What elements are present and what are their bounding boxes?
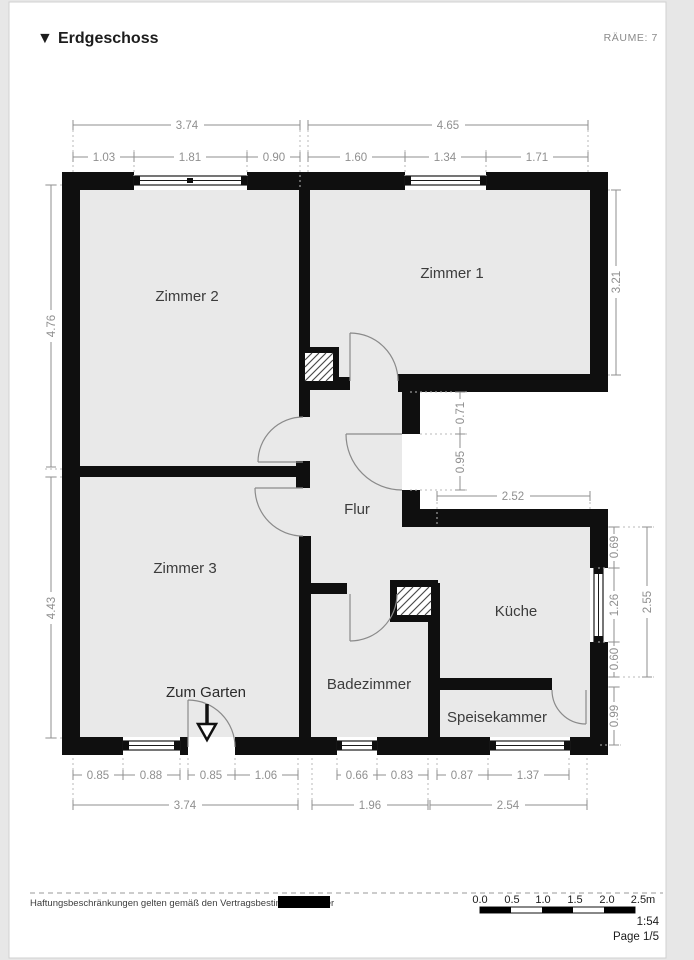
dim-text: 3.74: [174, 800, 197, 812]
page-title: Erdgeschoss: [58, 30, 159, 47]
chimney-1: [299, 347, 339, 387]
room-label-zimmer2: Zimmer 2: [155, 288, 218, 305]
garden-door-label: Zum Garten: [166, 684, 246, 701]
window-zimmer1-top: [405, 176, 486, 185]
dim-text: 0.85: [87, 770, 109, 782]
page-indicator: Page 1/5: [613, 931, 659, 943]
dim-text: 1.34: [434, 152, 457, 164]
dim-text: 0.88: [140, 770, 162, 782]
scale-label: 0.0: [472, 894, 487, 906]
dim-text: 0.99: [609, 705, 621, 727]
dim-text: 4.65: [437, 120, 459, 132]
room-label-badezimmer: Badezimmer: [327, 676, 411, 693]
collapse-icon[interactable]: ▼: [37, 30, 53, 47]
dim-text: 3.74: [176, 120, 199, 132]
dim-text: 1.96: [359, 800, 381, 812]
scale-label: 2.0: [599, 894, 614, 906]
entrance-threshold: [402, 434, 420, 490]
dim-text: 1.71: [526, 152, 548, 164]
window-zimmer3-bottom: [123, 741, 180, 750]
dim-text: 1.37: [517, 770, 539, 782]
rooms-count: RÄUME: 7: [604, 32, 658, 44]
dim-text: 1.81: [179, 152, 201, 164]
redaction-box: [278, 896, 330, 908]
dim-text: 1.60: [345, 152, 367, 164]
scale-label: 2.5m: [631, 894, 655, 906]
room-label-zimmer1: Zimmer 1: [420, 265, 483, 282]
dim-text: 2.54: [497, 800, 520, 812]
dim-text: 0.83: [391, 770, 413, 782]
chimney-2: [390, 580, 438, 622]
scale-ratio: 1:54: [637, 916, 660, 928]
floorplan-page: ▼ Erdgeschoss RÄUME: 7: [0, 0, 694, 960]
dim-text: 0.69: [609, 536, 621, 558]
scale-label: 1.0: [535, 894, 550, 906]
room-label-speisekammer: Speisekammer: [447, 709, 547, 726]
dim-text: 0.71: [455, 402, 467, 424]
dim-text: 3.21: [611, 271, 623, 293]
room-label-zimmer3: Zimmer 3: [153, 560, 216, 577]
dim-text: 1.03: [93, 152, 115, 164]
dim-text: 0.85: [200, 770, 222, 782]
dim-text: 0.87: [451, 770, 473, 782]
dim-text: 0.90: [263, 152, 285, 164]
dim-text: 2.52: [502, 491, 524, 503]
dim-text: 4.76: [46, 315, 58, 337]
window-zimmer2-top: [134, 176, 247, 185]
dim-text: 4.43: [46, 597, 58, 619]
scale-label: 0.5: [504, 894, 519, 906]
window-badezimmer-bottom: [337, 741, 377, 750]
room-label-flur: Flur: [344, 501, 370, 518]
dim-text: 1.26: [609, 594, 621, 616]
scale-label: 1.5: [567, 894, 582, 906]
window-speisekammer-bottom: [490, 741, 570, 750]
dim-text: 0.66: [346, 770, 368, 782]
dim-text: 0.60: [609, 648, 621, 670]
window-kueche-right: [594, 568, 603, 642]
dim-text: 0.95: [455, 451, 467, 473]
room-label-kueche: Küche: [495, 603, 538, 620]
dim-text: 2.55: [642, 591, 654, 613]
dim-text: 1.06: [255, 770, 277, 782]
